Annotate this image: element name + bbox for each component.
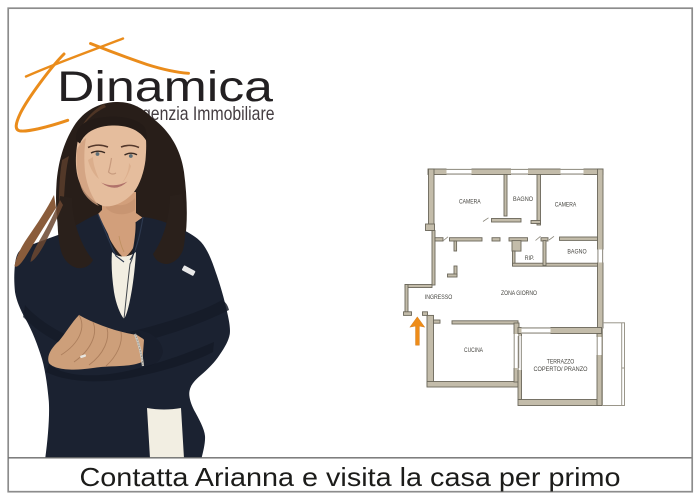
- svg-text:INGRESSO: INGRESSO: [425, 294, 453, 301]
- svg-text:BAGNO: BAGNO: [567, 248, 586, 255]
- svg-text:TERRAZZO: TERRAZZO: [547, 358, 575, 365]
- svg-text:COPERTO/ PRANZO: COPERTO/ PRANZO: [534, 366, 588, 373]
- svg-text:Contatta Arianna e visita la c: Contatta Arianna e visita la casa per pr…: [80, 464, 621, 492]
- svg-text:CUCINA: CUCINA: [464, 347, 484, 354]
- svg-text:RIP.: RIP.: [525, 255, 535, 262]
- svg-text:ZONA GIORNO: ZONA GIORNO: [501, 290, 537, 297]
- svg-text:BAGNO: BAGNO: [513, 196, 533, 203]
- svg-text:CAMERA: CAMERA: [555, 201, 577, 208]
- svg-text:CAMERA: CAMERA: [459, 198, 481, 205]
